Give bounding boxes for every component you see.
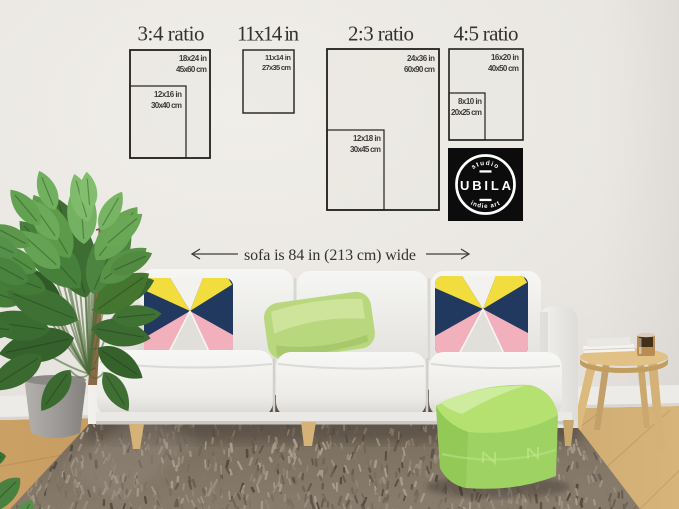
- svg-text:18x24 in: 18x24 in: [179, 54, 207, 63]
- svg-text:8x10 in: 8x10 in: [458, 97, 482, 106]
- svg-text:UBILA: UBILA: [460, 178, 512, 193]
- svg-text:3:4 ratio: 3:4 ratio: [138, 22, 205, 46]
- svg-text:30x40 cm: 30x40 cm: [151, 101, 182, 110]
- svg-text:16x20 in: 16x20 in: [491, 53, 519, 62]
- svg-text:sofa is 84 in (213 cm) wide: sofa is 84 in (213 cm) wide: [244, 247, 416, 264]
- svg-text:12x18 in: 12x18 in: [353, 134, 381, 143]
- svg-text:11x14 in: 11x14 in: [265, 53, 291, 62]
- svg-text:24x36 in: 24x36 in: [407, 54, 435, 63]
- svg-text:20x25 cm: 20x25 cm: [451, 108, 482, 117]
- svg-text:40x50 cm: 40x50 cm: [488, 64, 519, 73]
- svg-text:11x14 in: 11x14 in: [237, 22, 300, 46]
- svg-text:27x35 cm: 27x35 cm: [262, 63, 291, 72]
- svg-text:60x90 cm: 60x90 cm: [404, 65, 435, 74]
- svg-text:45x60 cm: 45x60 cm: [176, 65, 207, 74]
- svg-text:4:5 ratio: 4:5 ratio: [454, 22, 519, 46]
- svg-text:2:3 ratio: 2:3 ratio: [348, 22, 414, 46]
- svg-text:12x16 in: 12x16 in: [154, 90, 182, 99]
- svg-text:30x45 cm: 30x45 cm: [350, 145, 381, 154]
